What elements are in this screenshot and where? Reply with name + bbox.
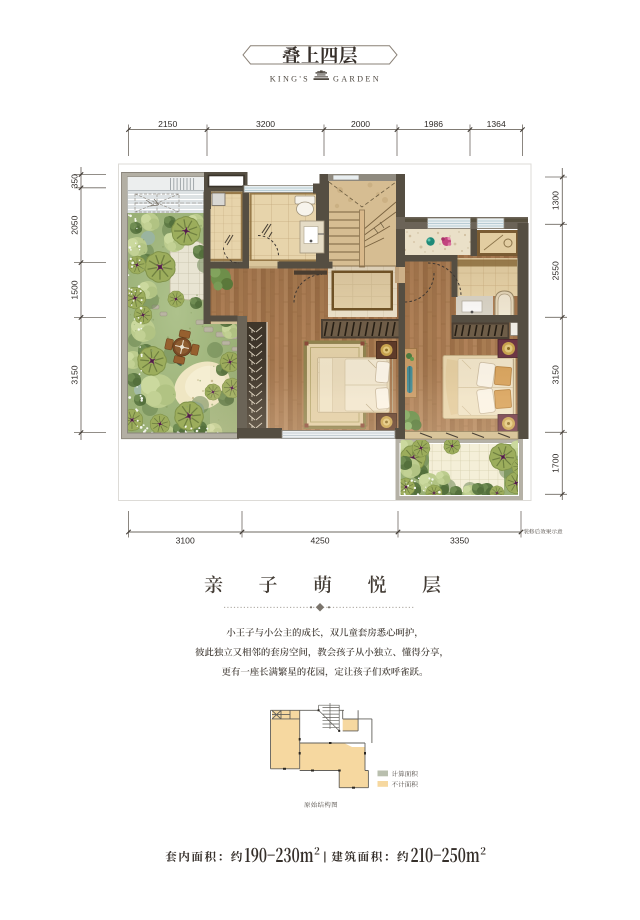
- svg-text:350: 350: [70, 174, 80, 189]
- svg-text:3100: 3100: [176, 536, 195, 546]
- svg-text:2150: 2150: [158, 119, 177, 129]
- svg-text:2550: 2550: [551, 261, 561, 280]
- svg-text:1364: 1364: [487, 119, 506, 129]
- svg-text:1700: 1700: [551, 454, 561, 473]
- svg-text:3150: 3150: [70, 365, 80, 384]
- svg-text:1300: 1300: [551, 191, 561, 210]
- svg-text:3350: 3350: [450, 536, 469, 546]
- svg-text:KING'S: KING'S: [270, 75, 310, 84]
- svg-text:1500: 1500: [70, 280, 80, 299]
- svg-text:2050: 2050: [70, 215, 80, 234]
- svg-text:GARDEN: GARDEN: [333, 75, 381, 84]
- svg-text:3200: 3200: [256, 119, 275, 129]
- svg-text:4250: 4250: [310, 536, 329, 546]
- svg-text:2000: 2000: [351, 119, 370, 129]
- svg-text:3150: 3150: [551, 365, 561, 384]
- svg-text:1986: 1986: [424, 119, 443, 129]
